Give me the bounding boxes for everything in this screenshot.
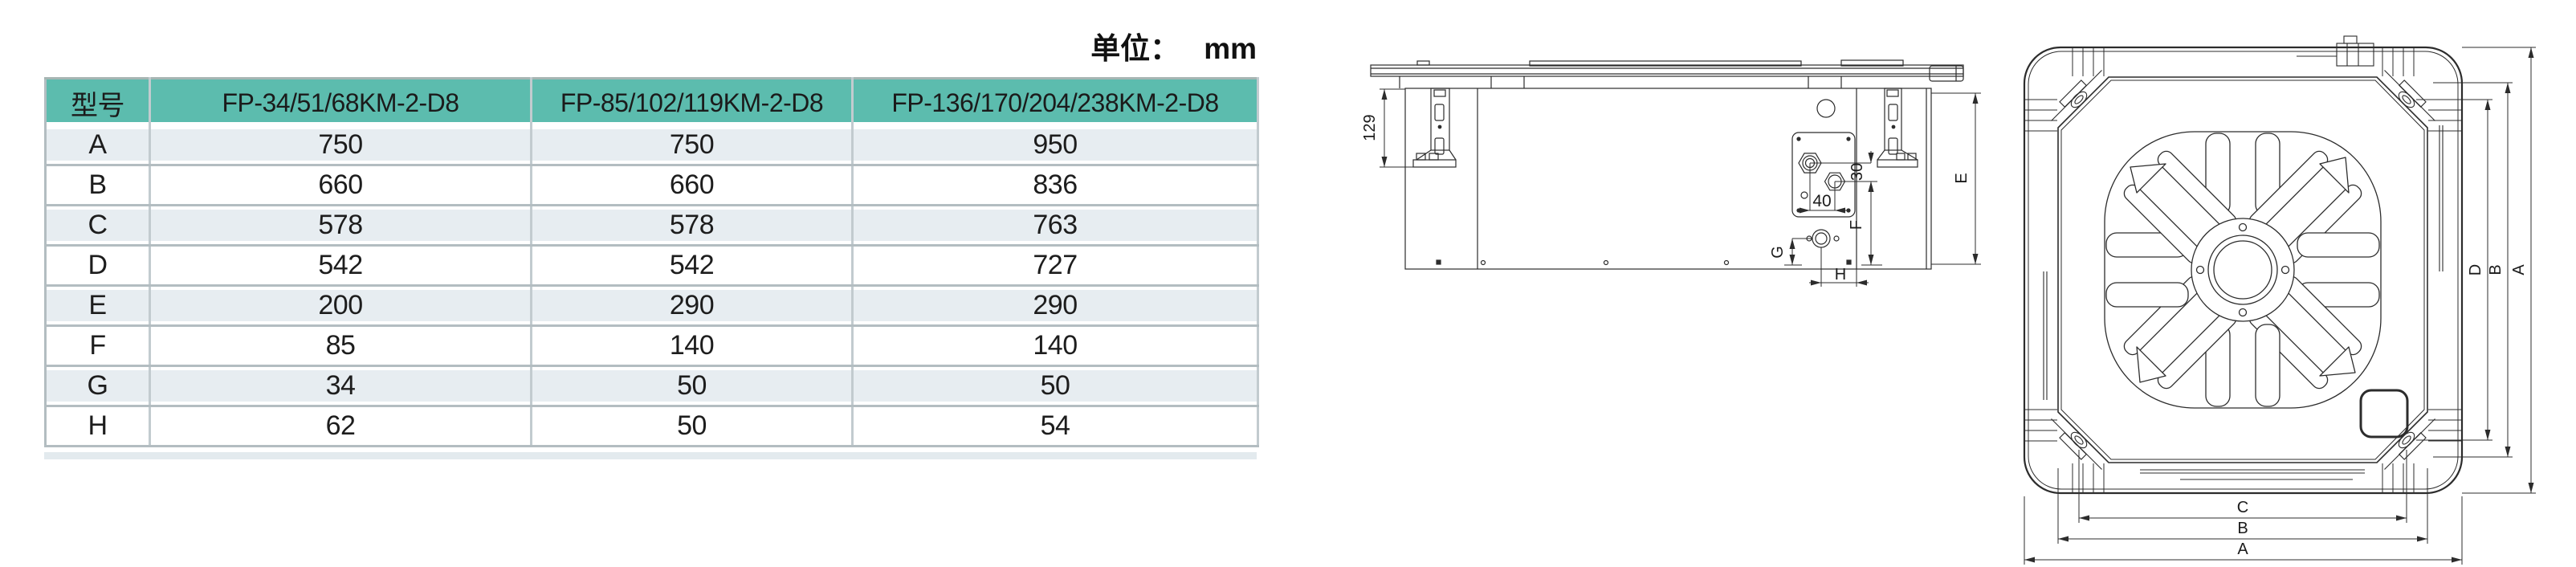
dimension-cell: 50 <box>532 366 853 406</box>
side-view-dimensions <box>1380 89 1981 287</box>
dimension-cell: 763 <box>853 206 1258 246</box>
dimension-cell: 62 <box>150 406 532 447</box>
table-bottom-strip <box>44 452 1257 459</box>
unit-label: 单位：mm <box>883 24 1257 67</box>
row-label: C <box>46 206 150 246</box>
dimension-cell: 950 <box>853 126 1258 165</box>
table-row: A 750 750 950 <box>46 126 1258 165</box>
table-row: B 660 660 836 <box>46 165 1258 206</box>
dimension-cell: 578 <box>532 206 853 246</box>
table-row: D 542 542 727 <box>46 246 1258 286</box>
dim-label-a-bottom: A <box>2237 540 2248 558</box>
dimension-cell: 290 <box>532 286 853 326</box>
row-label: H <box>46 406 150 447</box>
dimension-cell: 660 <box>532 165 853 206</box>
hanging-bracket-left <box>1413 88 1456 167</box>
dimension-cell: 578 <box>150 206 532 246</box>
dimension-cell: 836 <box>853 165 1258 206</box>
fan-hub <box>2191 218 2294 321</box>
dim-label-g: G <box>1769 246 1787 259</box>
col-header-model: 型号 <box>46 79 150 127</box>
dim-label-40: 40 <box>1812 192 1831 210</box>
dimensions-table: 型号 FP-34/51/68KM-2-D8 FP-85/102/119KM-2-… <box>44 77 1259 447</box>
dimension-cell: 50 <box>532 406 853 447</box>
dim-label-a-right: A <box>2510 264 2528 275</box>
dim-label-h: H <box>1835 266 1846 283</box>
knockout-hole <box>1817 100 1835 117</box>
col-header-fp34: FP-34/51/68KM-2-D8 <box>150 79 532 127</box>
dimension-cell: 200 <box>150 286 532 326</box>
table-row: E 200 290 290 <box>46 286 1258 326</box>
side-view-drawing: 129 40 30 F G H E <box>1363 58 1983 295</box>
dim-label-c: C <box>2237 499 2248 516</box>
dimension-cell: 50 <box>853 366 1258 406</box>
spec-sheet: 单位：mm 型号 FP-34/51/68KM-2-D8 FP-85/102/11… <box>0 0 2576 567</box>
dim-label-30: 30 <box>1848 163 1866 181</box>
dimension-cell: 727 <box>853 246 1258 286</box>
row-label: A <box>46 126 150 165</box>
dim-label-129: 129 <box>1363 114 1379 141</box>
unit-prefix: 单位： <box>1090 32 1180 65</box>
dim-label-b-bottom: B <box>2237 520 2248 537</box>
bottom-view-drawing: D B A C B A <box>1995 22 2576 567</box>
table-row: F 85 140 140 <box>46 326 1258 366</box>
dimension-cell: 54 <box>853 406 1258 447</box>
dimension-cell: 542 <box>532 246 853 286</box>
row-label: B <box>46 165 150 206</box>
dimension-cell: 140 <box>532 326 853 366</box>
ceiling-panel <box>1371 60 1963 88</box>
dimension-cell: 290 <box>853 286 1258 326</box>
bottom-view-dimensions <box>2024 47 2536 565</box>
row-label: D <box>46 246 150 286</box>
dim-label-b-right: B <box>2487 264 2505 275</box>
dimension-cell: 750 <box>532 126 853 165</box>
row-label: E <box>46 286 150 326</box>
hanging-bracket-right <box>1877 88 1918 167</box>
row-label: F <box>46 326 150 366</box>
table-row: C 578 578 763 <box>46 206 1258 246</box>
dimension-cell: 140 <box>853 326 1258 366</box>
table-row: G 34 50 50 <box>46 366 1258 406</box>
dim-label-d: D <box>2467 264 2484 275</box>
dim-label-f: F <box>1848 220 1865 230</box>
row-label: G <box>46 366 150 406</box>
dimension-cell: 750 <box>150 126 532 165</box>
dimension-cell: 542 <box>150 246 532 286</box>
col-header-fp85: FP-85/102/119KM-2-D8 <box>532 79 853 127</box>
table-header-row: 型号 FP-34/51/68KM-2-D8 FP-85/102/119KM-2-… <box>46 79 1258 127</box>
col-header-fp136: FP-136/170/204/238KM-2-D8 <box>853 79 1258 127</box>
dimension-cell: 85 <box>150 326 532 366</box>
fan-grille <box>2105 132 2381 408</box>
dimension-cell: 34 <box>150 366 532 406</box>
unit-value: mm <box>1204 32 1257 65</box>
dimension-cell: 660 <box>150 165 532 206</box>
table-row: H 62 50 54 <box>46 406 1258 447</box>
dim-label-e: E <box>1953 173 1971 183</box>
